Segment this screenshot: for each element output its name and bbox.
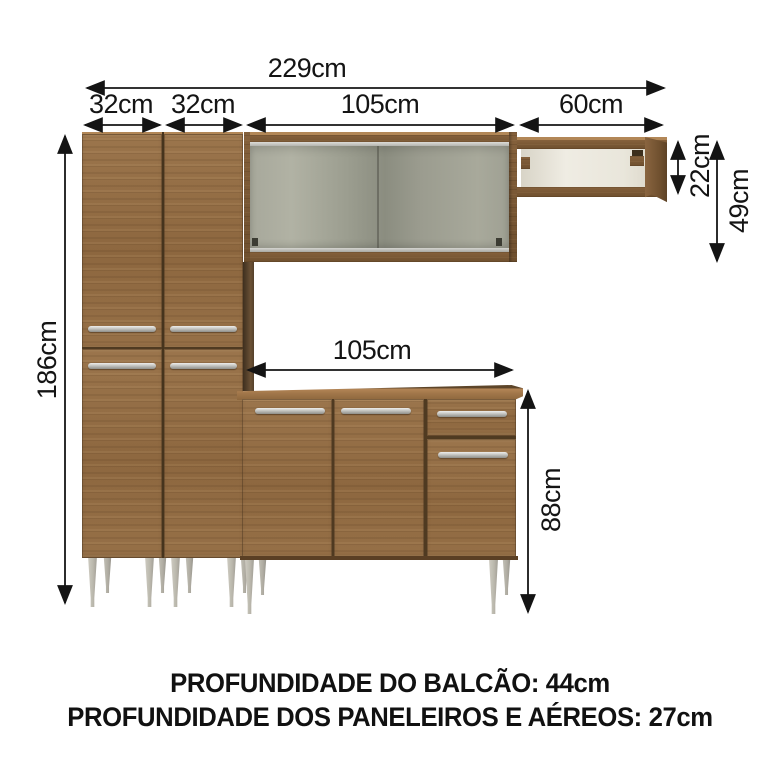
dim-label-prateleira-height: 22cm bbox=[685, 106, 715, 226]
depth-note-paneleiros: PROFUNDIDADE DOS PANELEIROS E AÉREOS: 27… bbox=[20, 702, 761, 733]
dim-label-aereo-height: 49cm bbox=[724, 141, 754, 261]
product-dimension-diagram: 229cm 32cm 32cm 105cm 60cm 186cm 105cm 2… bbox=[0, 0, 780, 780]
dim-label-balcao-height: 88cm bbox=[536, 440, 566, 560]
dim-label-aereo-width: 105cm bbox=[330, 88, 430, 120]
depth-note-balcao: PROFUNDIDADE DO BALCÃO: 44cm bbox=[20, 668, 761, 699]
dim-label-total-width: 229cm bbox=[257, 52, 357, 84]
dim-label-paneleiro2-width: 32cm bbox=[153, 88, 253, 120]
dim-label-paneleiro-height: 186cm bbox=[32, 300, 62, 420]
dim-label-balcao-width: 105cm bbox=[322, 334, 422, 366]
dim-label-prateleira-width: 60cm bbox=[541, 88, 641, 120]
